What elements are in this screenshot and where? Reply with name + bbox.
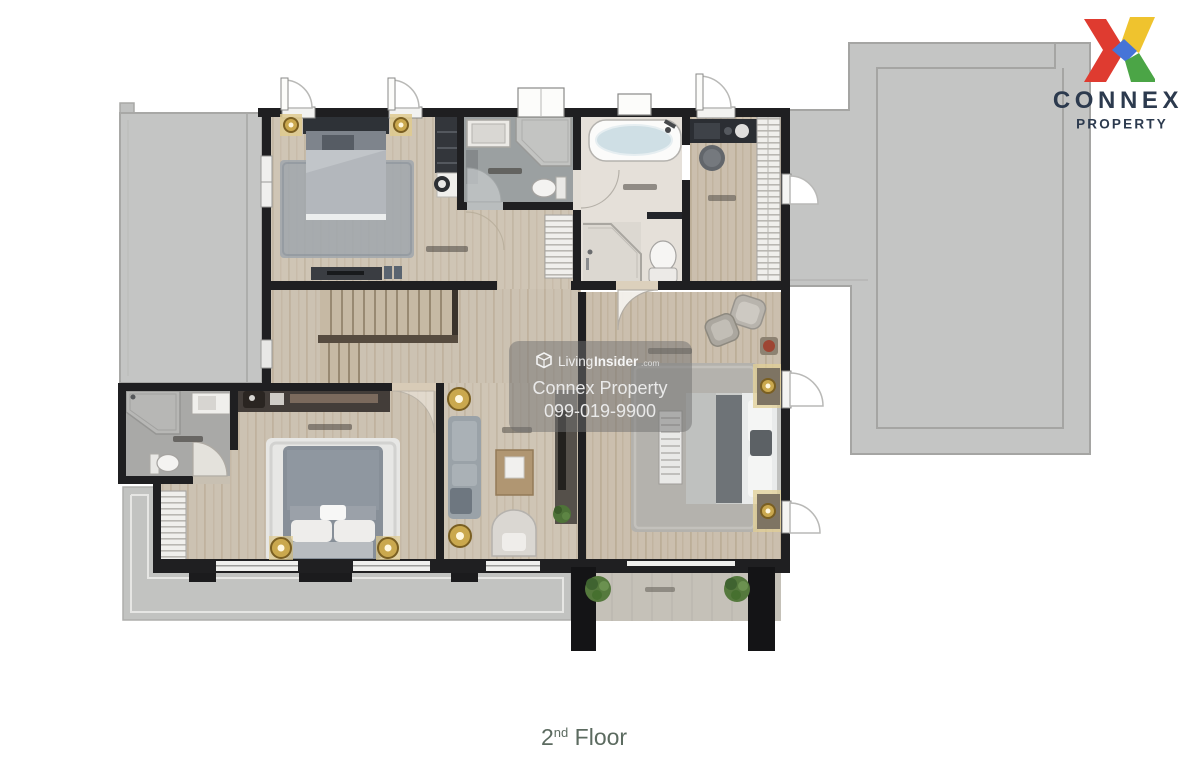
svg-text:Insider: Insider (594, 354, 639, 369)
svg-text:099-019-9900: 099-019-9900 (544, 401, 656, 421)
svg-text:.com: .com (641, 358, 659, 368)
svg-text:Living: Living (558, 354, 593, 369)
svg-text:PROPERTY: PROPERTY (1076, 117, 1168, 132)
svg-text:Connex Property: Connex Property (532, 378, 667, 398)
svg-text:CONNEX: CONNEX (1053, 87, 1183, 114)
